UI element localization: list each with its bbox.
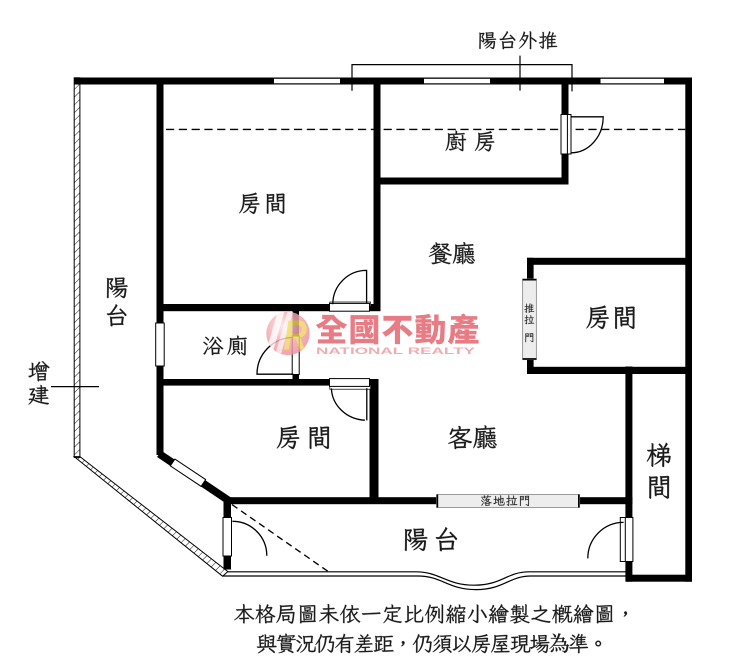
svg-text:NATIONAL REALTY: NATIONAL REALTY <box>316 346 475 356</box>
svg-text:R: R <box>284 311 307 358</box>
